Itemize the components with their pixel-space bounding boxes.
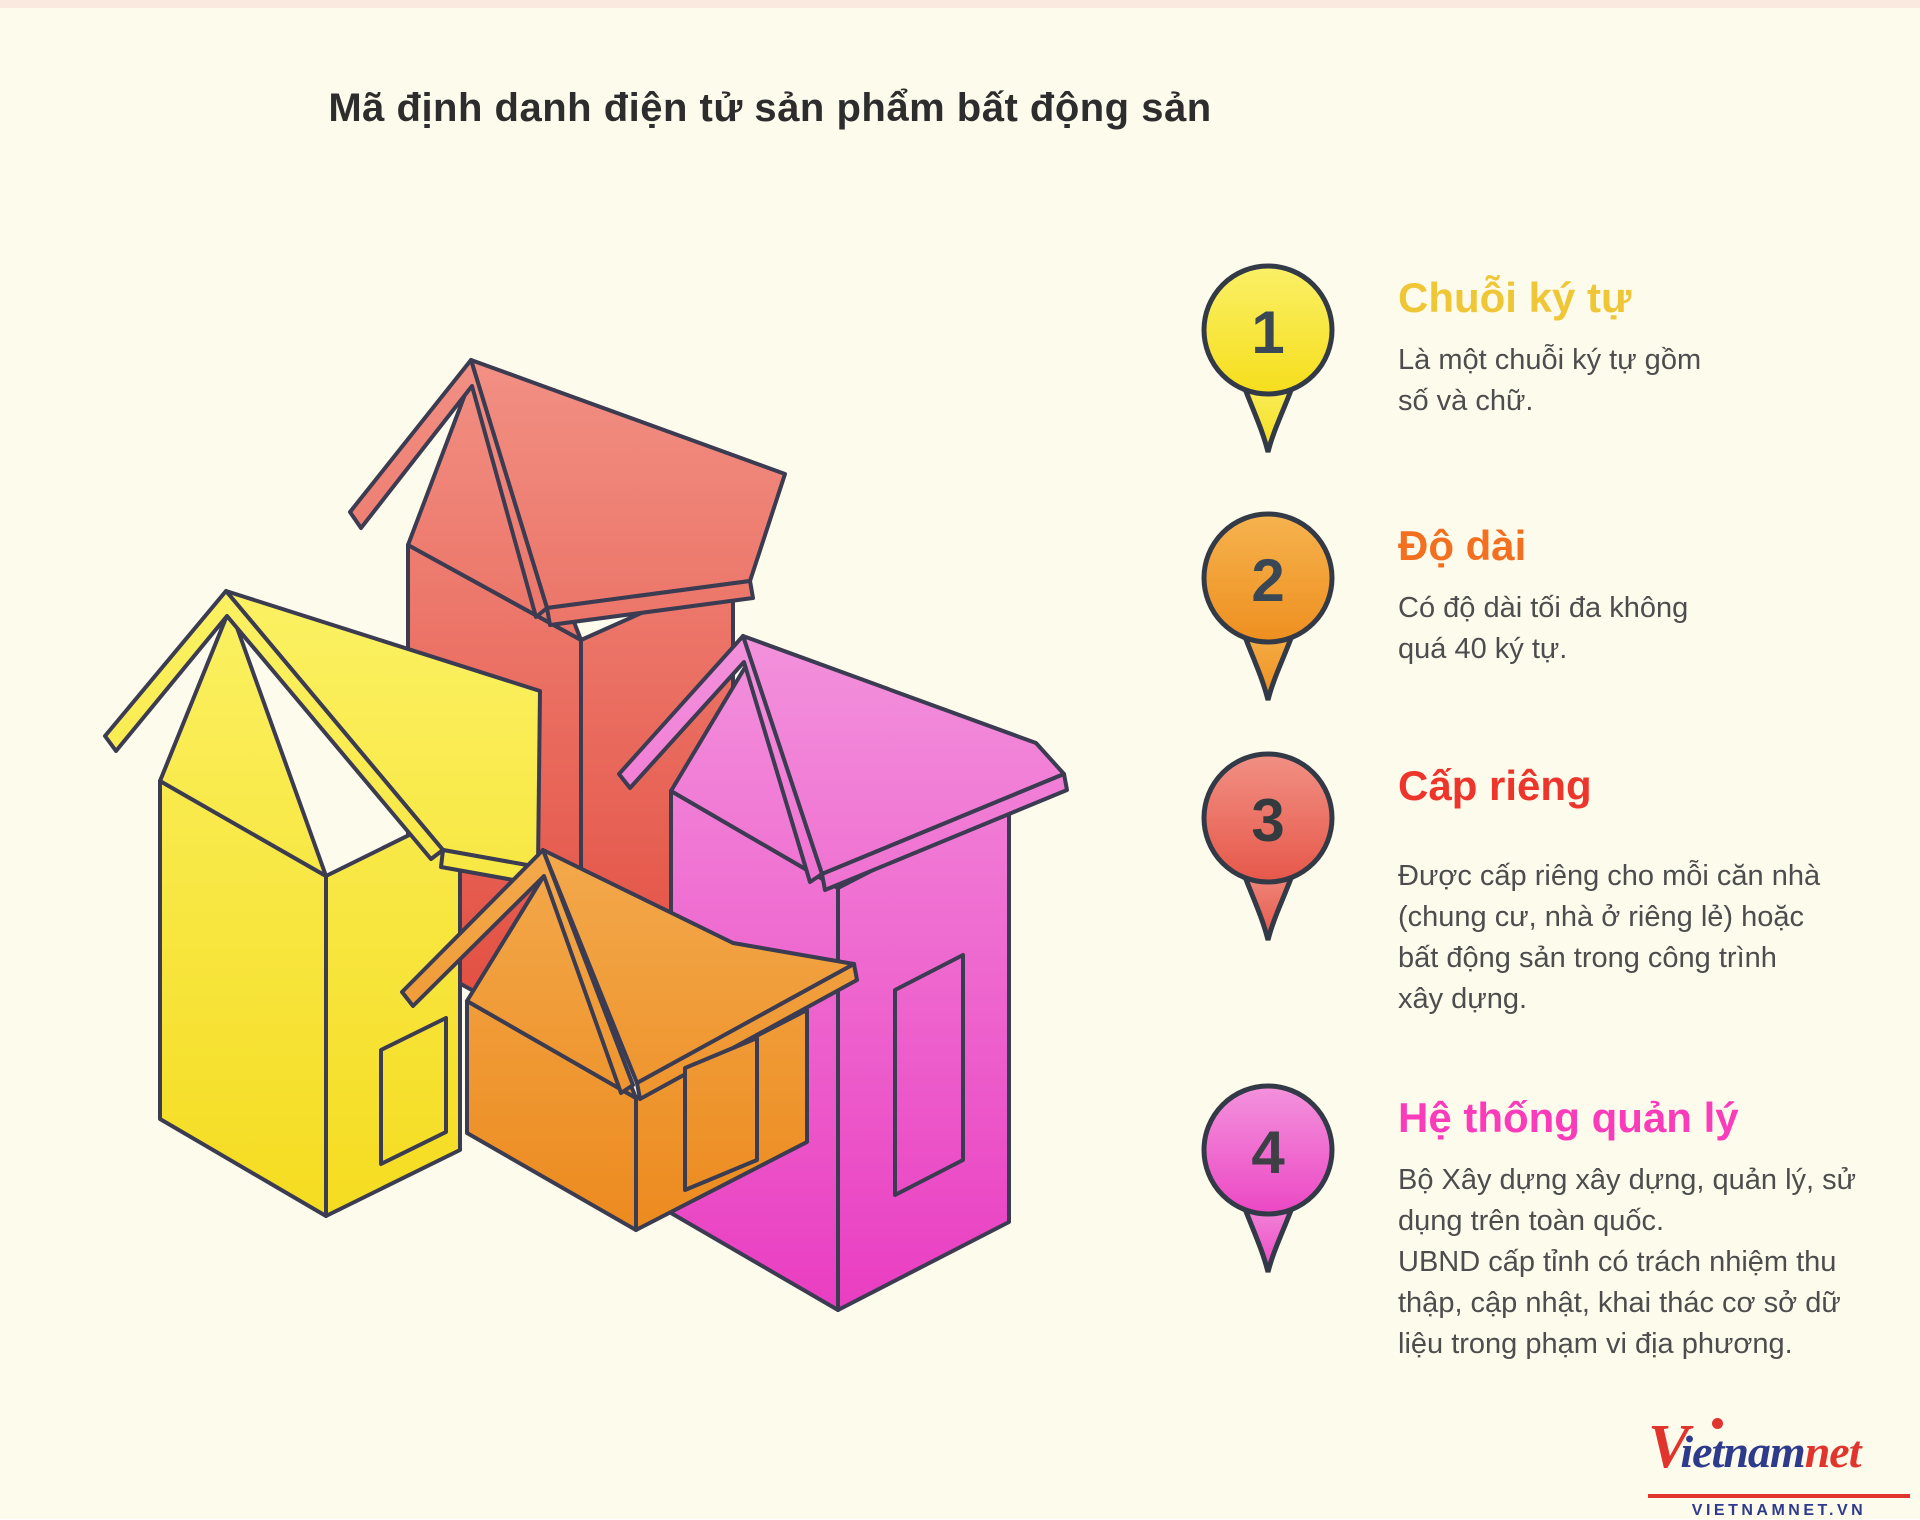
step-badge-3: 3: [1196, 748, 1341, 953]
step-heading: Hệ thống quản lý: [1398, 1092, 1898, 1144]
logo-i-dot-icon: [1712, 1418, 1723, 1429]
step-description: Là một chuỗi ký tự gồm số và chữ.: [1398, 340, 1898, 422]
step-heading: Chuỗi ký tự: [1398, 272, 1898, 324]
badge-number: 3: [1251, 787, 1284, 854]
step-heading: Cấp riêng: [1398, 760, 1898, 812]
vietnamnet-logo: Vietnamnet VIETNAMNET.VN: [1648, 1418, 1910, 1520]
logo-word-blue: ietnam: [1680, 1426, 1804, 1477]
step-description: Được cấp riêng cho mỗi căn nhà (chung cư…: [1398, 856, 1898, 1020]
step-badge-4: 4: [1196, 1080, 1341, 1285]
houses-illustration: [60, 260, 1120, 1390]
step-description: Có độ dài tối đa không quá 40 ký tự.: [1398, 588, 1898, 670]
magenta-house-door: [895, 955, 963, 1195]
step-heading: Độ dài: [1398, 520, 1898, 572]
top-border: [0, 0, 1920, 8]
step-badge-2: 2: [1196, 508, 1341, 713]
logo-underline: [1648, 1494, 1910, 1498]
logo-word-red: net: [1805, 1426, 1861, 1477]
step-description: Bộ Xây dựng xây dựng, quản lý, sử dụng t…: [1398, 1160, 1898, 1365]
page-title: Mã định danh điện tử sản phẩm bất động s…: [250, 86, 1290, 131]
vietnamnet-wordmark: Vietnamnet: [1648, 1418, 1910, 1492]
badge-number: 4: [1251, 1119, 1285, 1186]
badge-number: 1: [1251, 299, 1284, 366]
step-badge-1: 1: [1196, 260, 1341, 465]
badge-number: 2: [1251, 547, 1284, 614]
logo-site-url: VIETNAMNET.VN: [1648, 1502, 1910, 1520]
infographic-canvas: Mã định danh điện tử sản phẩm bất động s…: [0, 0, 1920, 1519]
